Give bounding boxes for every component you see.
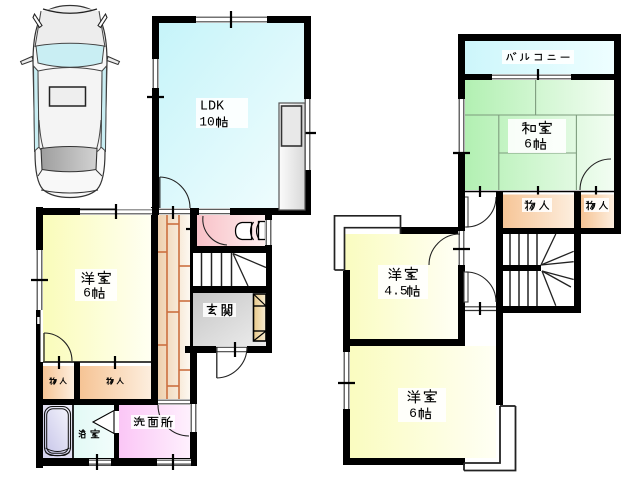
svg-text:6: 6 [83,286,91,301]
svg-text:4.5: 4.5 [384,284,407,299]
svg-text:6: 6 [409,406,417,421]
svg-text:10: 10 [199,115,215,130]
svg-text:6: 6 [524,137,532,152]
svg-text:LDK: LDK [200,100,225,115]
